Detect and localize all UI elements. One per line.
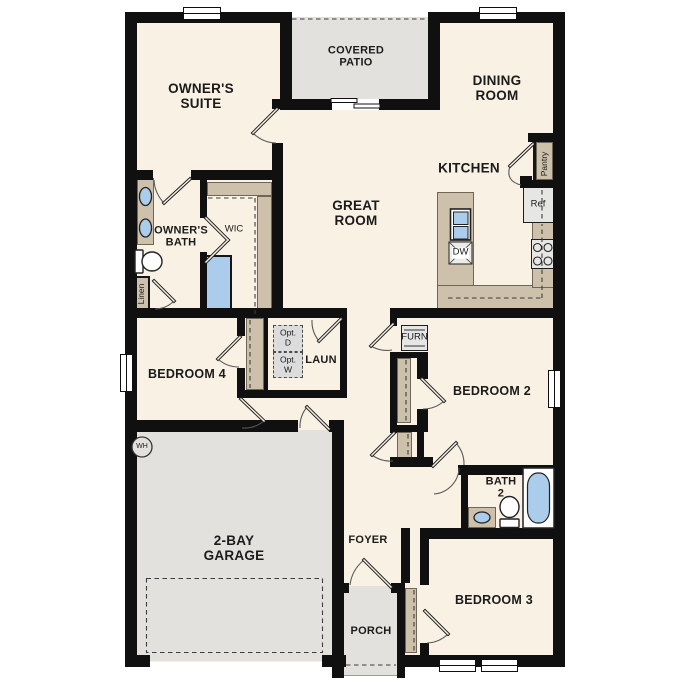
owners-bath-sinks: [140, 188, 152, 238]
label-bath2: BATH 2: [486, 476, 517, 501]
label-great-room: GREAT ROOM: [332, 198, 380, 228]
door-leaf: [364, 560, 391, 587]
door-arc: [218, 359, 239, 367]
label-opt-d: Opt. D: [280, 328, 296, 347]
door-leaf: [371, 324, 393, 346]
door-leaf: [433, 443, 456, 466]
floor-plan: OWNER'S SUITE COVERED PATIO DINING ROOM …: [0, 0, 687, 687]
door-leaf: [206, 240, 228, 262]
door-leaf: [422, 379, 444, 401]
wic-rod-dash: [208, 198, 255, 314]
label-porch: PORCH: [351, 625, 392, 637]
label-furn: FURN: [401, 333, 427, 344]
door-arc: [509, 166, 521, 185]
door-arc: [371, 346, 392, 350]
bath2-toilet: [500, 497, 519, 528]
door-leaf: [218, 337, 240, 359]
label-laundry: LAUN: [305, 354, 337, 366]
door-leaf: [154, 281, 174, 301]
label-linen: Linen: [137, 284, 147, 305]
bathtub: [523, 468, 554, 528]
door-arc: [242, 421, 264, 428]
label-bedroom2: BEDROOM 2: [453, 384, 531, 398]
door-arc: [300, 407, 307, 428]
door-arc: [423, 401, 444, 409]
label-kitchen: KITCHEN: [438, 160, 500, 175]
label-garage: 2-BAY GARAGE: [204, 533, 265, 563]
door-leaf: [319, 319, 341, 341]
door-arc: [350, 560, 364, 585]
label-opt-w: Opt. W: [280, 355, 296, 374]
door-leaf: [164, 179, 190, 203]
door-arc: [253, 133, 276, 143]
door-leaf: [253, 109, 277, 133]
label-wh: WH: [136, 443, 148, 451]
door-leaf: [372, 433, 394, 455]
dashed-lines: [147, 19, 543, 665]
label-pantry: Pantry: [540, 152, 550, 177]
label-owners-bath: OWNER'S BATH: [154, 225, 208, 250]
label-ref: Ref: [531, 200, 546, 211]
sliding-door: [331, 99, 380, 109]
door-arc: [456, 443, 464, 465]
label-dining-room: DINING ROOM: [473, 73, 522, 103]
doors-and-fixtures-layer: [0, 0, 687, 687]
door-arc: [434, 468, 459, 494]
garage-door-dash: [147, 579, 323, 653]
bath2-sink: [474, 512, 490, 523]
door-leaf: [241, 399, 264, 421]
label-bedroom4: BEDROOM 4: [148, 367, 226, 381]
owners-toilet: [135, 250, 162, 273]
kitchen-sink: [451, 209, 471, 240]
label-foyer: FOYER: [348, 534, 387, 546]
door-arc: [372, 455, 393, 461]
door-arc: [312, 320, 319, 341]
label-dw: DW: [452, 248, 470, 259]
stove-burners: [534, 244, 553, 266]
label-covered-patio: COVERED PATIO: [328, 45, 384, 70]
label-wic: WIC: [225, 225, 243, 236]
label-bedroom3: BEDROOM 3: [455, 593, 533, 607]
label-owners-suite: OWNER'S SUITE: [168, 81, 234, 111]
door-leaf: [425, 611, 448, 634]
door-leaf: [307, 407, 329, 429]
door-leaf: [510, 144, 533, 166]
door-arc: [155, 301, 174, 309]
door-arc: [427, 634, 448, 643]
door-arc: [154, 180, 164, 203]
